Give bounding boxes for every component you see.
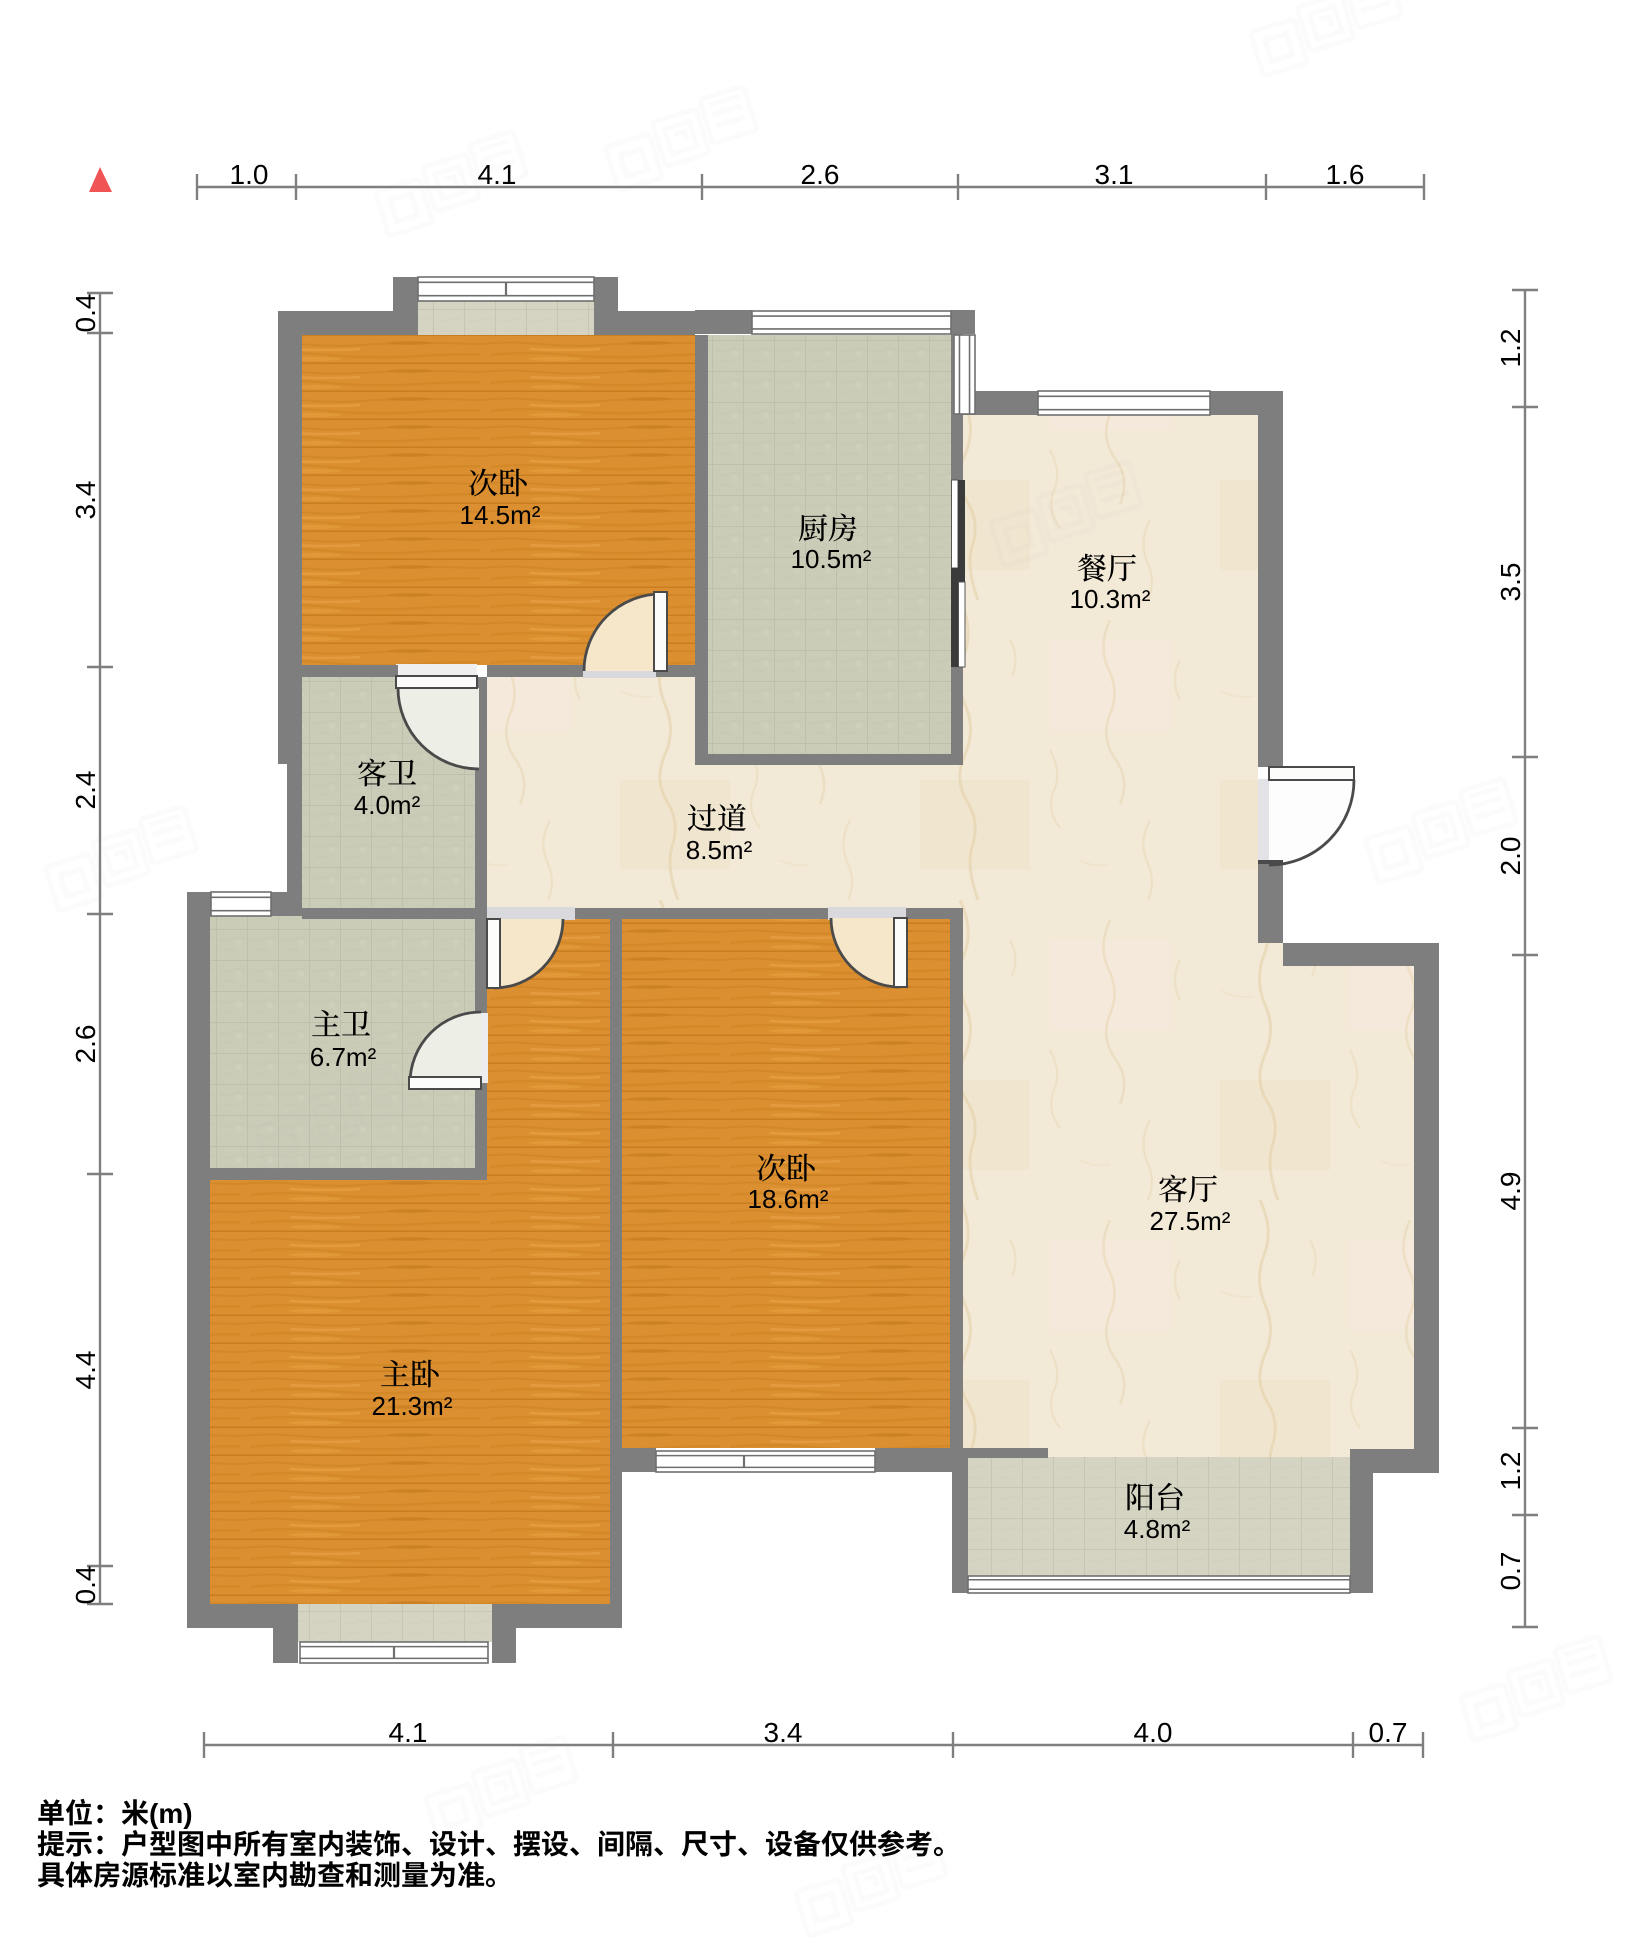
svg-text:3.1: 3.1 [1095, 159, 1134, 190]
svg-text:2.0: 2.0 [1495, 837, 1526, 876]
svg-text:4.0m²: 4.0m² [354, 790, 421, 820]
svg-text:0.7: 0.7 [1495, 1552, 1526, 1591]
svg-text:1.6: 1.6 [1326, 159, 1365, 190]
svg-text:10.3m²: 10.3m² [1070, 584, 1151, 614]
svg-text:8.5m²: 8.5m² [686, 835, 753, 865]
svg-text:1.2: 1.2 [1495, 329, 1526, 368]
svg-text:3.4: 3.4 [70, 481, 101, 520]
svg-text:2.6: 2.6 [70, 1025, 101, 1064]
svg-text:14.5m²: 14.5m² [460, 500, 541, 530]
svg-text:4.9: 4.9 [1495, 1172, 1526, 1211]
svg-text:27.5m²: 27.5m² [1150, 1206, 1231, 1236]
svg-text:0.4: 0.4 [70, 294, 101, 333]
svg-text:(m): (m) [149, 1798, 193, 1829]
svg-text:4.4: 4.4 [70, 1351, 101, 1390]
svg-text:4.8m²: 4.8m² [1124, 1514, 1191, 1544]
svg-text:3.5: 3.5 [1495, 563, 1526, 602]
svg-text:10.5m²: 10.5m² [791, 544, 872, 574]
svg-text:4.1: 4.1 [389, 1717, 428, 1748]
svg-text:1.0: 1.0 [230, 159, 269, 190]
svg-text:1.2: 1.2 [1495, 1452, 1526, 1491]
svg-text:3.4: 3.4 [764, 1717, 803, 1748]
svg-text:0.7: 0.7 [1369, 1717, 1408, 1748]
svg-text:2.6: 2.6 [801, 159, 840, 190]
svg-text:4.0: 4.0 [1134, 1717, 1173, 1748]
svg-text:0.4: 0.4 [70, 1566, 101, 1605]
svg-text:18.6m²: 18.6m² [748, 1184, 829, 1214]
svg-text:21.3m²: 21.3m² [372, 1391, 453, 1421]
svg-text:2.4: 2.4 [70, 771, 101, 810]
svg-text:6.7m²: 6.7m² [310, 1042, 377, 1072]
